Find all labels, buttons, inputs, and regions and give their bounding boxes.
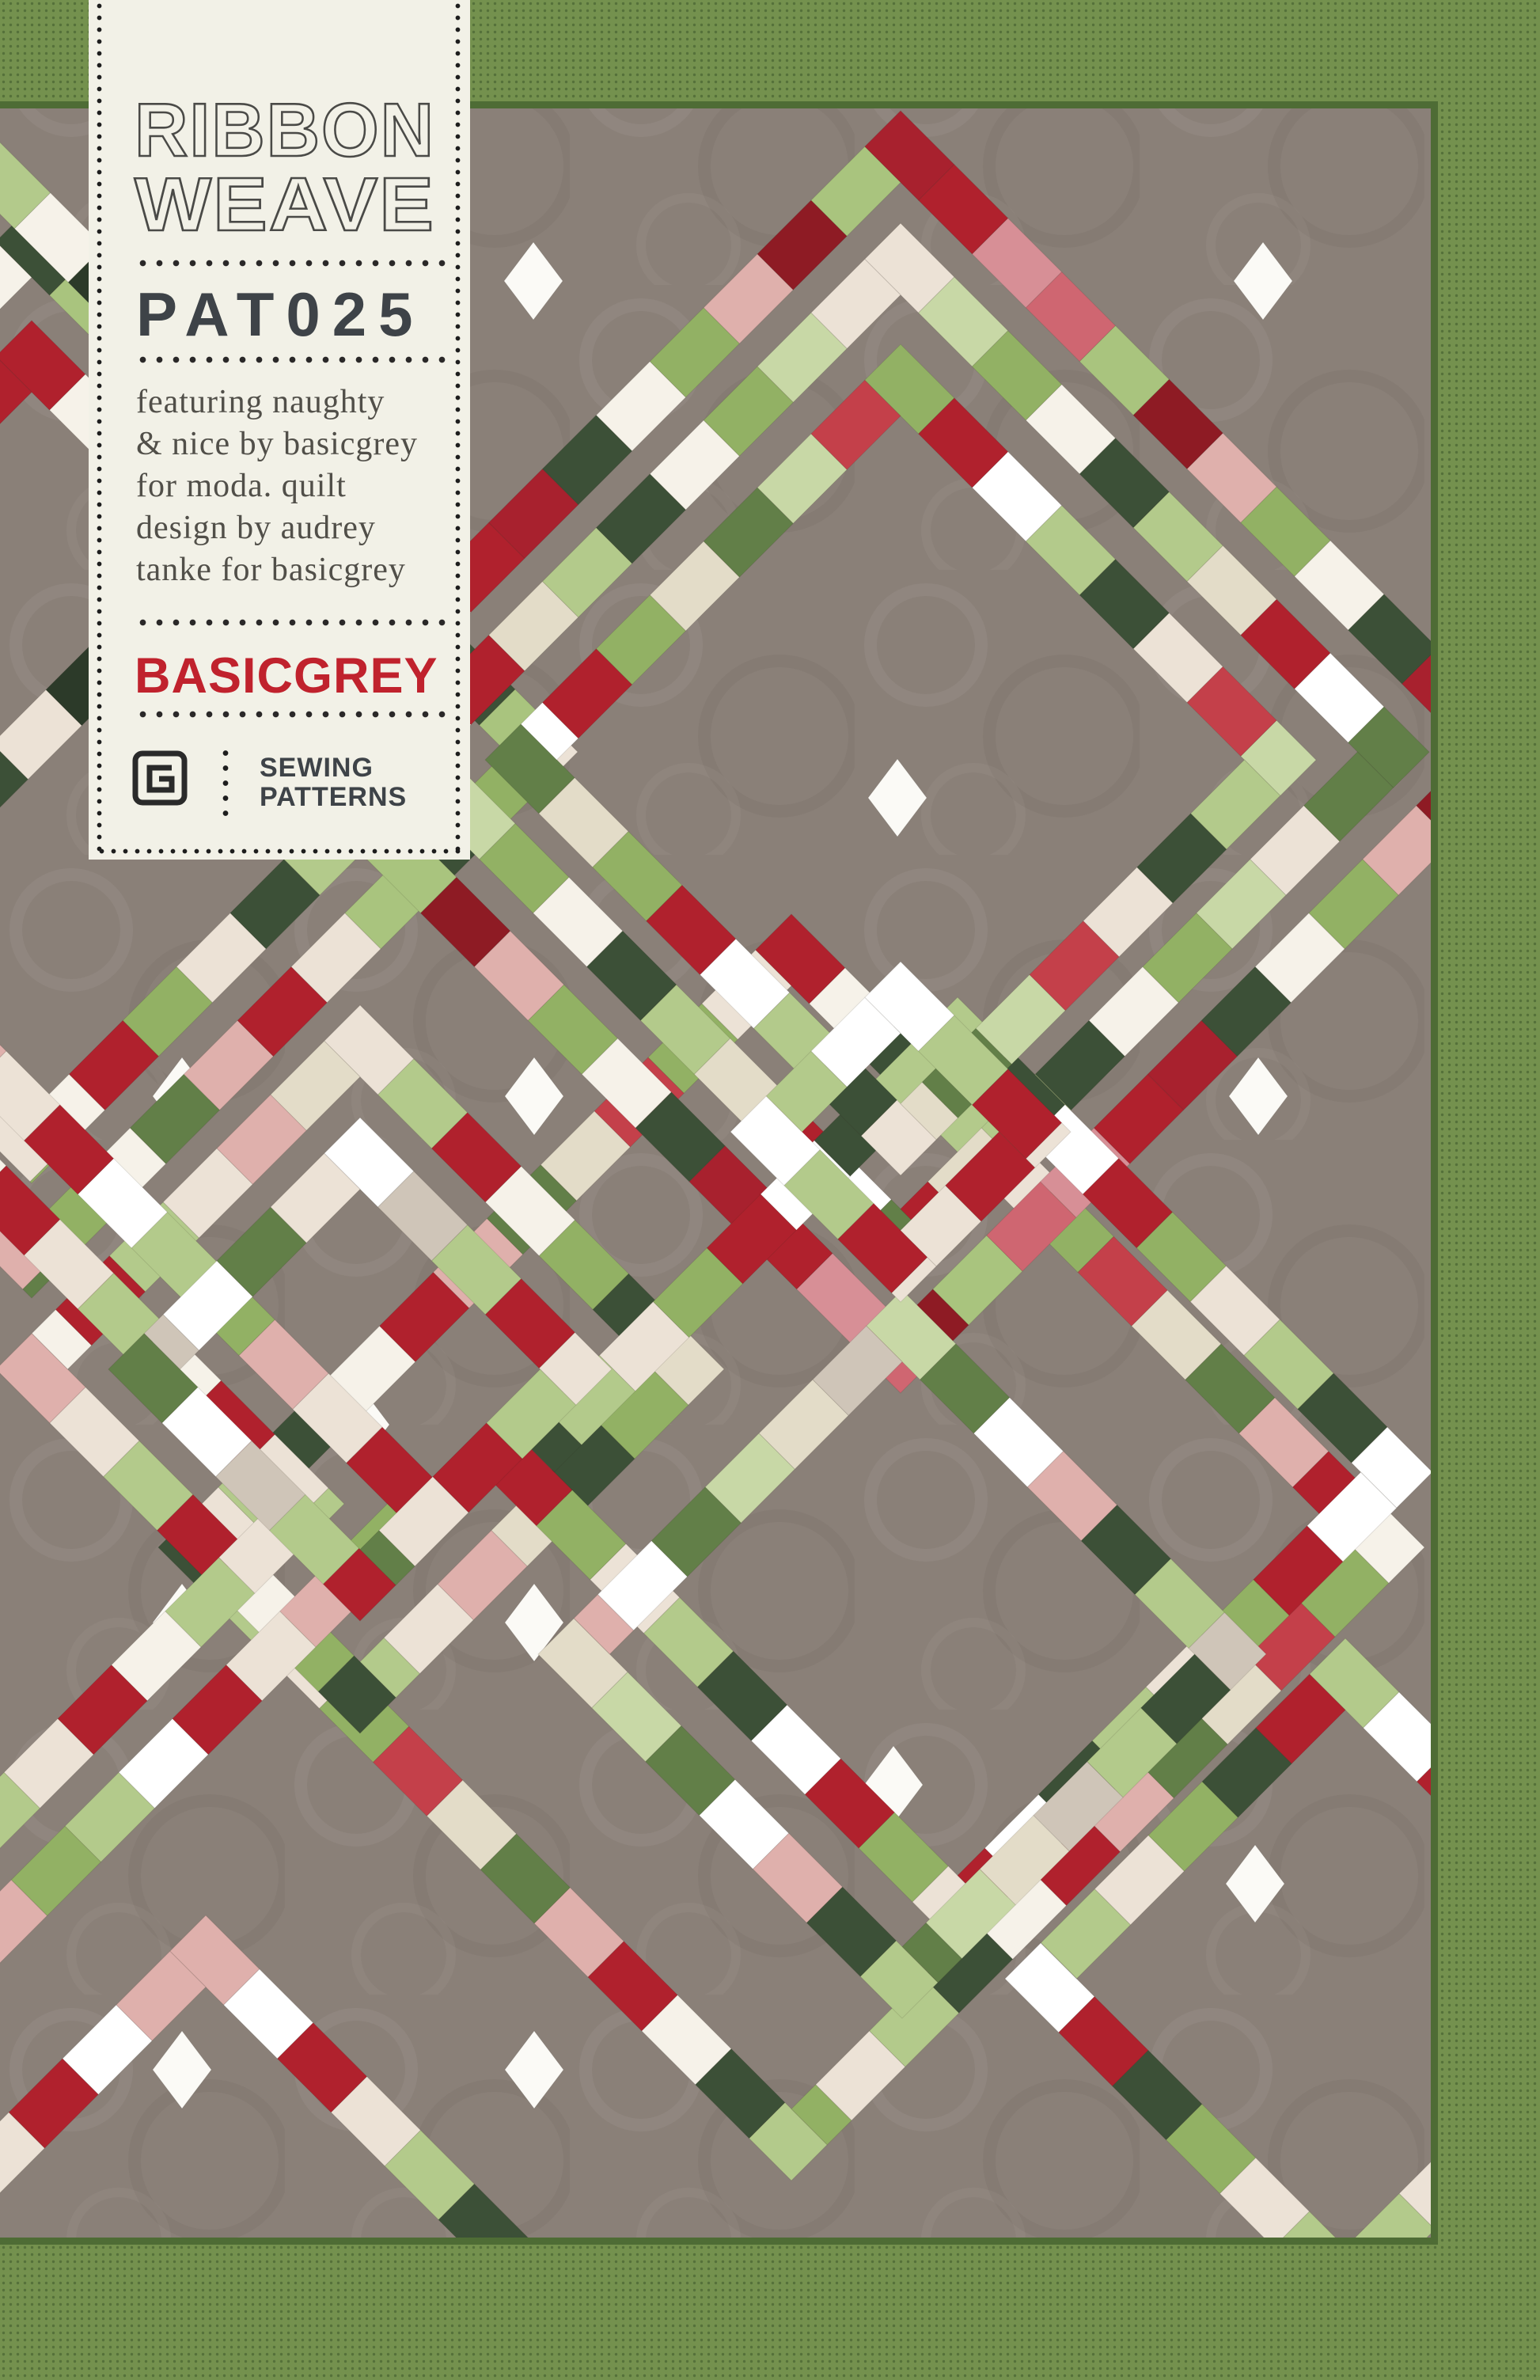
description-line: design by audrey <box>136 507 456 549</box>
brand-name: BASICGREY <box>135 647 451 704</box>
logo-caption: SEWING PATTERNS <box>260 753 407 812</box>
label-border-dots-left <box>96 0 103 855</box>
description-line: & nice by basicgrey <box>136 423 456 465</box>
quilt-title-line1: RIBBON <box>135 88 435 173</box>
label-border-dots-bottom <box>96 848 461 855</box>
label-description: featuring naughty & nice by basicgrey fo… <box>136 381 456 591</box>
dotted-divider-4 <box>135 710 446 719</box>
dotted-divider-2 <box>135 355 446 364</box>
logo-caption-line2: PATTERNS <box>260 783 407 812</box>
pattern-number: PAT025 <box>136 279 453 351</box>
label-card: RIBBON WEAVE PAT025 featuring naughty & … <box>89 0 470 860</box>
dotted-divider-1 <box>135 259 446 268</box>
description-line: featuring naughty <box>136 381 456 423</box>
basicgrey-logo-icon <box>131 749 188 807</box>
description-line: for moda. quilt <box>136 465 456 507</box>
logo-dotted-separator <box>222 746 229 825</box>
quilt-title-line2: WEAVE <box>135 162 435 247</box>
pattern-cover: RIBBON WEAVE PAT025 featuring naughty & … <box>0 0 1540 2380</box>
quilt-title: RIBBON WEAVE <box>133 87 451 261</box>
description-line: tanke for basicgrey <box>136 549 456 591</box>
logo-caption-line1: SEWING <box>260 753 407 783</box>
dotted-divider-3 <box>135 618 446 627</box>
